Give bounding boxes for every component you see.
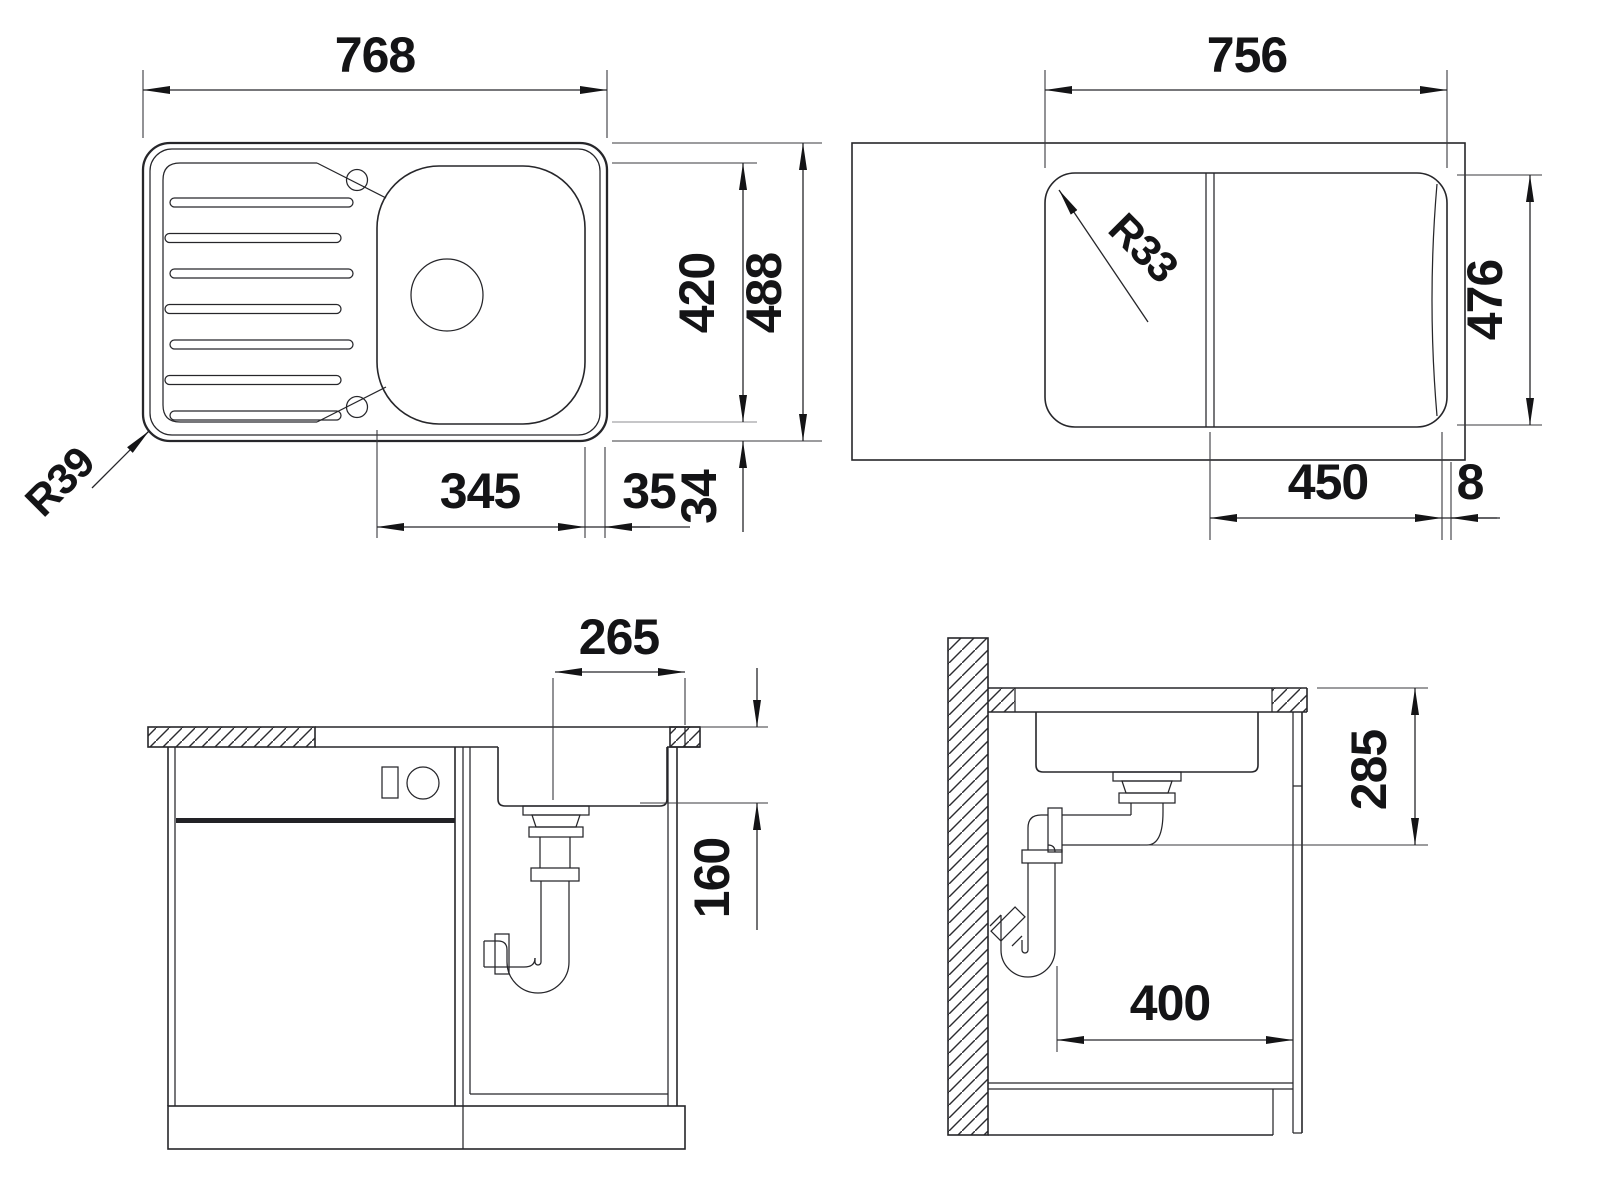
dim-450: 450 xyxy=(1210,432,1442,540)
dim-label-476: 476 xyxy=(1457,260,1513,340)
drain-trap xyxy=(484,806,589,993)
technical-drawing-sheet: 768 420 488 34 345 xyxy=(0,0,1600,1200)
radius-label-r39: R39 xyxy=(16,438,104,526)
dim-160: 160 xyxy=(640,668,768,930)
dim-345: 345 xyxy=(377,430,585,538)
callout-r33: R33 xyxy=(1059,190,1187,322)
bowl-outline xyxy=(377,166,585,424)
front-section-view: 265 160 xyxy=(148,609,768,1149)
worktop xyxy=(148,727,700,747)
door-gap-line xyxy=(176,818,455,823)
underside-pressed-area xyxy=(1045,173,1447,427)
side-section-view: 285 400 xyxy=(948,638,1428,1135)
worktop-side xyxy=(988,688,1307,712)
dim-label-285: 285 xyxy=(1341,730,1397,811)
bowl-section-side xyxy=(1036,712,1258,772)
plinth xyxy=(168,1106,685,1149)
dim-756: 756 xyxy=(1045,27,1447,168)
dim-label-756: 756 xyxy=(1207,27,1287,83)
dim-label-34: 34 xyxy=(671,469,727,524)
dim-8: 8 xyxy=(1442,454,1500,540)
bowl-divider xyxy=(1206,173,1214,427)
dim-label-345: 345 xyxy=(440,463,521,519)
dim-label-450: 450 xyxy=(1288,454,1368,510)
underside-view: 756 R33 476 450 8 xyxy=(852,27,1542,540)
hinge-plate xyxy=(382,767,398,798)
dim-label-400: 400 xyxy=(1130,975,1210,1031)
knob xyxy=(407,767,439,799)
dim-34: 34 xyxy=(671,441,743,532)
wall xyxy=(948,638,988,1135)
callout-r39: R39 xyxy=(16,431,149,526)
dim-label-160: 160 xyxy=(684,838,740,918)
dim-768: 768 xyxy=(143,27,607,138)
drainboard-ribs xyxy=(165,198,353,420)
dim-476: 476 xyxy=(1457,175,1542,425)
dim-label-488: 488 xyxy=(736,253,792,334)
sink-outer-rim xyxy=(143,143,607,441)
dim-label-265: 265 xyxy=(579,609,660,665)
dim-label-420: 420 xyxy=(669,253,725,333)
radius-label-r33: R33 xyxy=(1099,204,1187,292)
drain-piping-side xyxy=(990,772,1181,977)
dim-label-8: 8 xyxy=(1457,454,1484,510)
underside-outer-outline xyxy=(852,143,1465,460)
dim-400: 400 xyxy=(1057,966,1293,1052)
dim-265: 265 xyxy=(555,609,685,725)
dim-label-35: 35 xyxy=(622,463,676,519)
cabinet-front xyxy=(168,747,685,1149)
bowl-section xyxy=(498,747,667,806)
tap-hole-front xyxy=(347,397,368,418)
drain-hole xyxy=(411,259,483,331)
sink-dimension-drawing: 768 420 488 34 345 xyxy=(0,0,1600,1200)
cabinet-side xyxy=(988,712,1302,1135)
top-view: 768 420 488 34 345 xyxy=(16,27,822,538)
pressed-edge-fold xyxy=(1432,184,1437,416)
dim-label-768: 768 xyxy=(335,27,416,83)
